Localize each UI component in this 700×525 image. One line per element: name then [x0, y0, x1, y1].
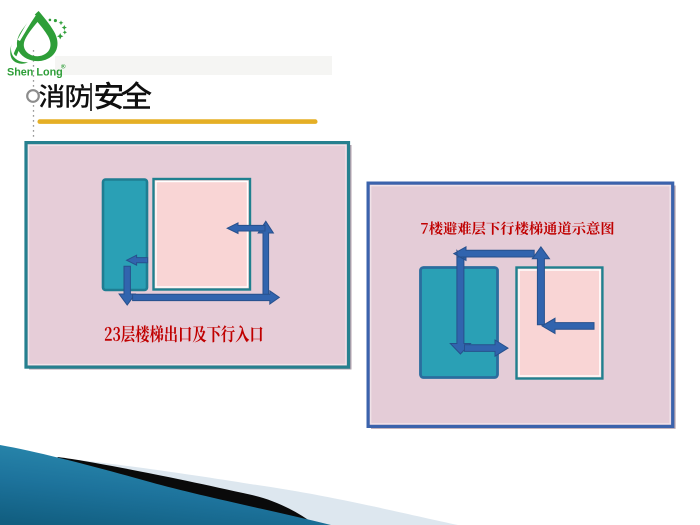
- svg-text:®: ®: [61, 64, 66, 71]
- svg-text:Shen Long: Shen Long: [7, 67, 63, 79]
